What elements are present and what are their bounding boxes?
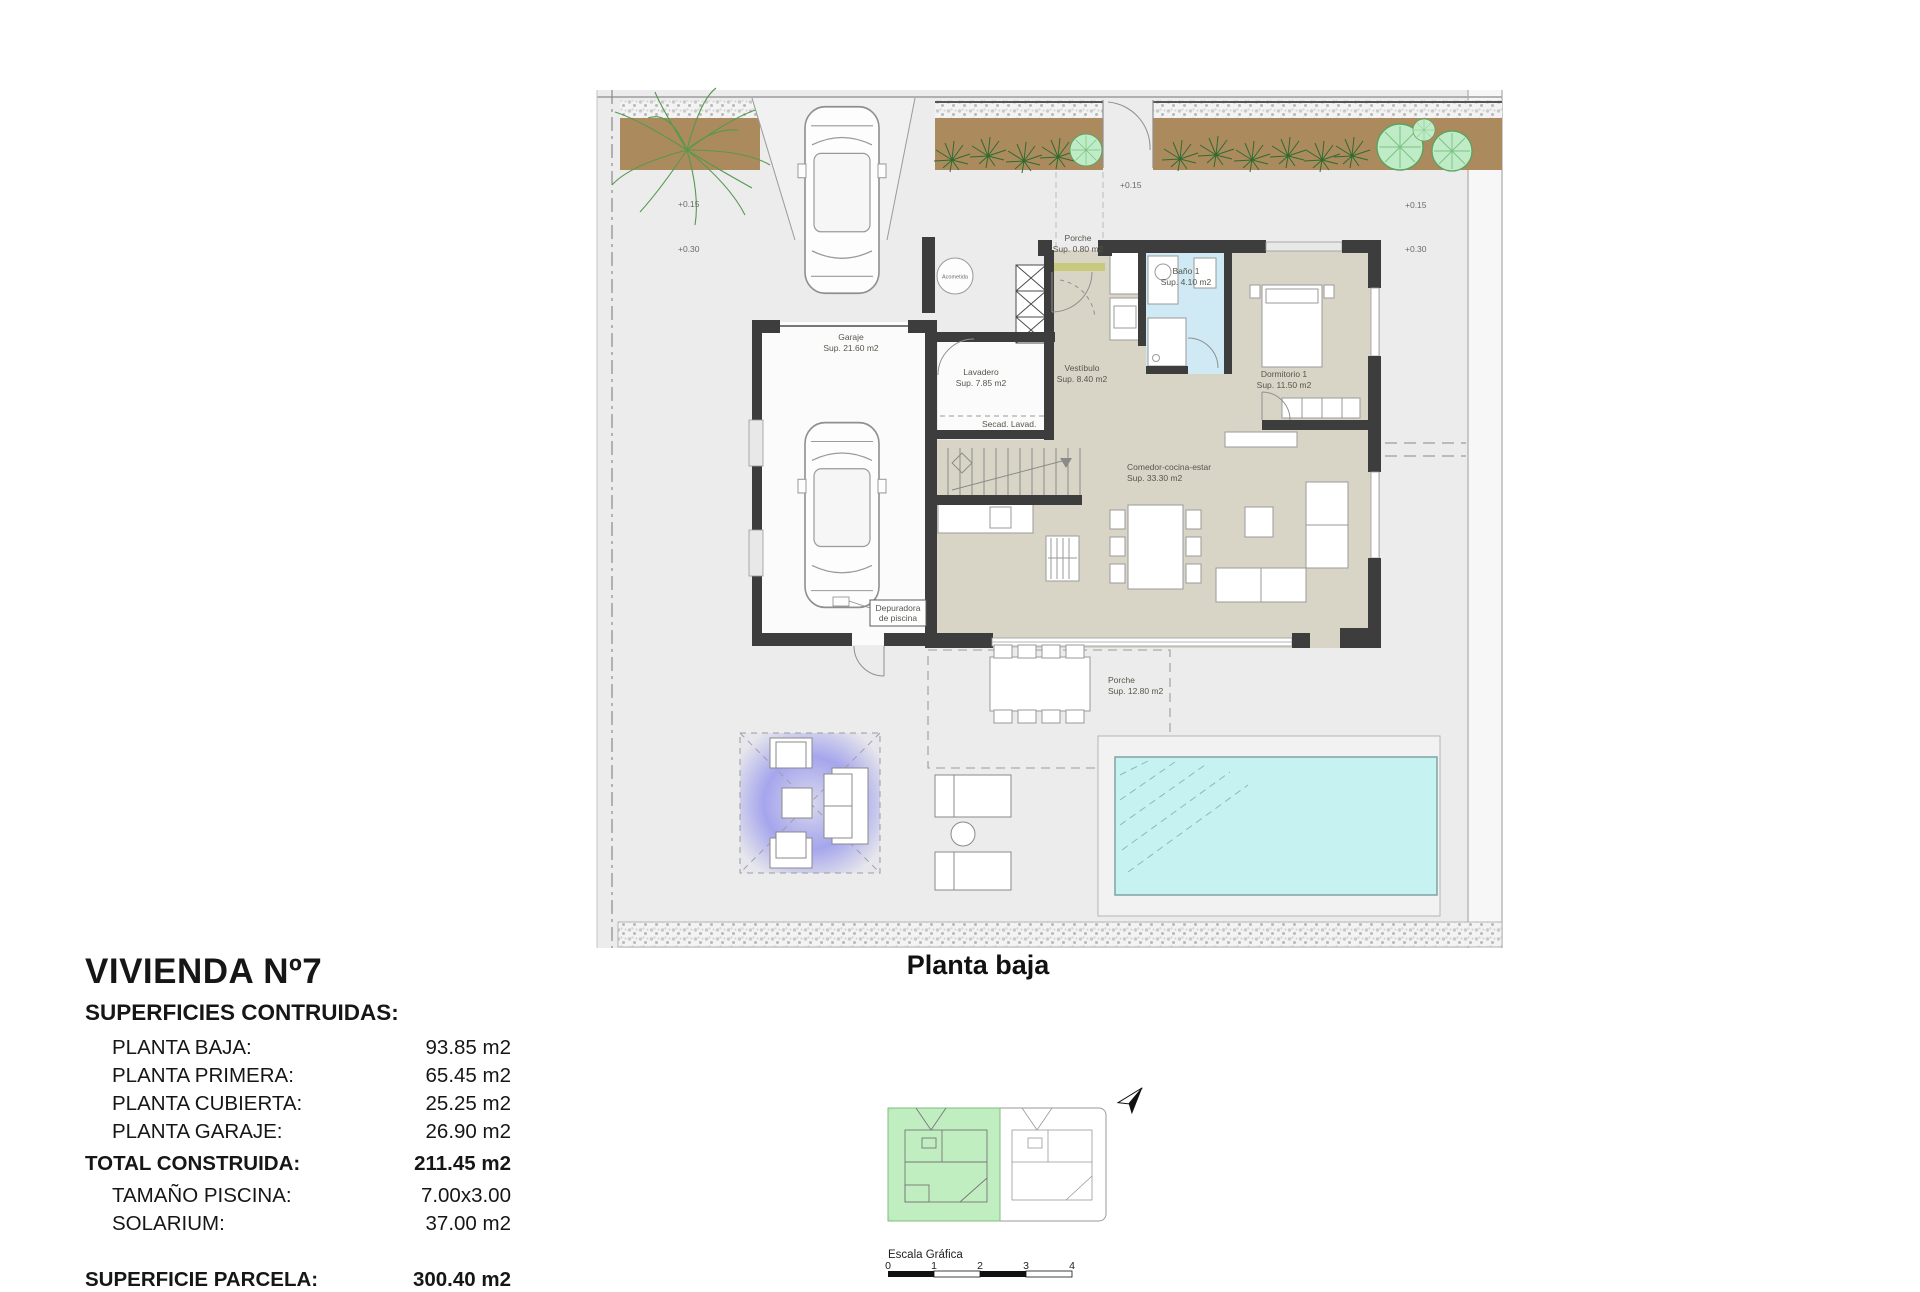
pool-area <box>1098 736 1440 916</box>
label-porche-inferior: Porche <box>1108 675 1135 685</box>
label-vestibulo-sup: Sup. 8.40 m2 <box>1057 374 1108 384</box>
gravel-strip-left <box>620 100 760 118</box>
acometida-label: Acometida <box>942 275 969 281</box>
label-comedor-sup: Sup. 33.30 m2 <box>1127 473 1183 483</box>
scale-tick-3: 3 <box>1023 1260 1029 1272</box>
level-center: +0.15 <box>1120 180 1142 190</box>
label-bano-sup: Sup. 4.10 m2 <box>1161 277 1212 287</box>
solarium-label: SOLARIUM: <box>112 1212 225 1236</box>
sheet-title: VIVIENDA Nº7 <box>85 952 322 992</box>
surfaces-heading: SUPERFICIES CONTRUIDAS: <box>85 1000 399 1026</box>
label-comedor: Comedor-cocina-estar <box>1127 462 1211 472</box>
label-garaje: Garaje <box>838 332 864 342</box>
pedestrian-gate <box>1103 100 1153 168</box>
scale-tick-1: 1 <box>931 1260 937 1272</box>
level-right-lower: +0.30 <box>1405 244 1427 254</box>
label-porche-top: Porche <box>1065 233 1092 243</box>
label-dormitorio: Dormitorio 1 <box>1261 369 1308 379</box>
parcel-value: 300.40 m2 <box>413 1268 511 1292</box>
scale-bar: Escala Gráfica 0 1 2 3 4 <box>885 1249 1075 1277</box>
sofa-right <box>1306 482 1348 568</box>
depuradora-label-1: Depuradora <box>876 603 921 613</box>
pool-size-value: 7.00x3.00 <box>421 1184 511 1208</box>
kitchen-island <box>1046 536 1079 581</box>
surface-row-value: 26.90 m2 <box>426 1120 511 1144</box>
solarium-value: 37.00 m2 <box>426 1212 511 1236</box>
shaft <box>1016 265 1046 343</box>
label-porche-inferior-sup: Sup. 12.80 m2 <box>1108 686 1164 696</box>
sofa-bottom <box>1216 568 1306 602</box>
surface-row-label: PLANTA GARAJE: <box>112 1120 283 1144</box>
total-value: 211.45 m2 <box>414 1152 511 1176</box>
surface-row-value: 93.85 m2 <box>426 1036 511 1060</box>
label-secadero: Secad. Lavad. <box>982 419 1036 429</box>
label-lavadero: Lavadero <box>963 367 999 377</box>
scale-label: Escala Gráfica <box>888 1249 963 1261</box>
label-bano: Baño 1 <box>1173 266 1200 276</box>
pool-size-label: TAMAÑO PISCINA: <box>112 1184 292 1208</box>
scale-tick-4: 4 <box>1069 1260 1075 1272</box>
scale-tick-2: 2 <box>977 1260 983 1272</box>
level-left-lower: +0.30 <box>678 244 700 254</box>
surface-row-value: 65.45 m2 <box>426 1064 511 1088</box>
label-lavadero-sup: Sup. 7.85 m2 <box>956 378 1007 388</box>
plan-caption: Planta baja <box>907 950 1051 980</box>
acometida-marker: Acometida <box>937 258 973 294</box>
scale-tick-0: 0 <box>885 1260 891 1272</box>
car-garage-icon <box>798 423 886 608</box>
label-vestibulo: Vestíbulo <box>1065 363 1100 373</box>
floor-plan-drawing: +0.15 +0.30 +0.15 +0.15 +0.30 <box>0 0 1920 1280</box>
label-dormitorio-sup: Sup. 11.50 m2 <box>1257 380 1312 390</box>
parcel-label: SUPERFICIE PARCELA: <box>85 1268 318 1292</box>
north-arrow-icon <box>1118 1082 1149 1114</box>
total-label: TOTAL CONSTRUIDA: <box>85 1152 300 1176</box>
surface-row-value: 25.25 m2 <box>426 1092 511 1116</box>
label-garaje-sup: Sup. 21.60 m2 <box>823 343 879 353</box>
outdoor-dining-table <box>990 645 1090 723</box>
surface-row-label: PLANTA CUBIERTA: <box>112 1092 302 1116</box>
dining-table <box>1110 505 1201 589</box>
gravel-strip-bottom <box>618 922 1502 947</box>
key-plan <box>888 1082 1149 1221</box>
pool <box>1115 757 1437 895</box>
pergola-lounge <box>740 733 880 873</box>
car-driveway-icon <box>798 107 886 294</box>
level-left-upper: +0.15 <box>678 199 700 209</box>
depuradora-label-2: de piscina <box>879 613 918 623</box>
level-right-upper: +0.15 <box>1405 200 1427 210</box>
entry-step <box>1052 263 1105 271</box>
surface-row-label: PLANTA PRIMERA: <box>112 1064 294 1088</box>
label-porche-top-sup: Sup. 0.80 m2 <box>1053 244 1104 254</box>
surface-row-label: PLANTA BAJA: <box>112 1036 252 1060</box>
